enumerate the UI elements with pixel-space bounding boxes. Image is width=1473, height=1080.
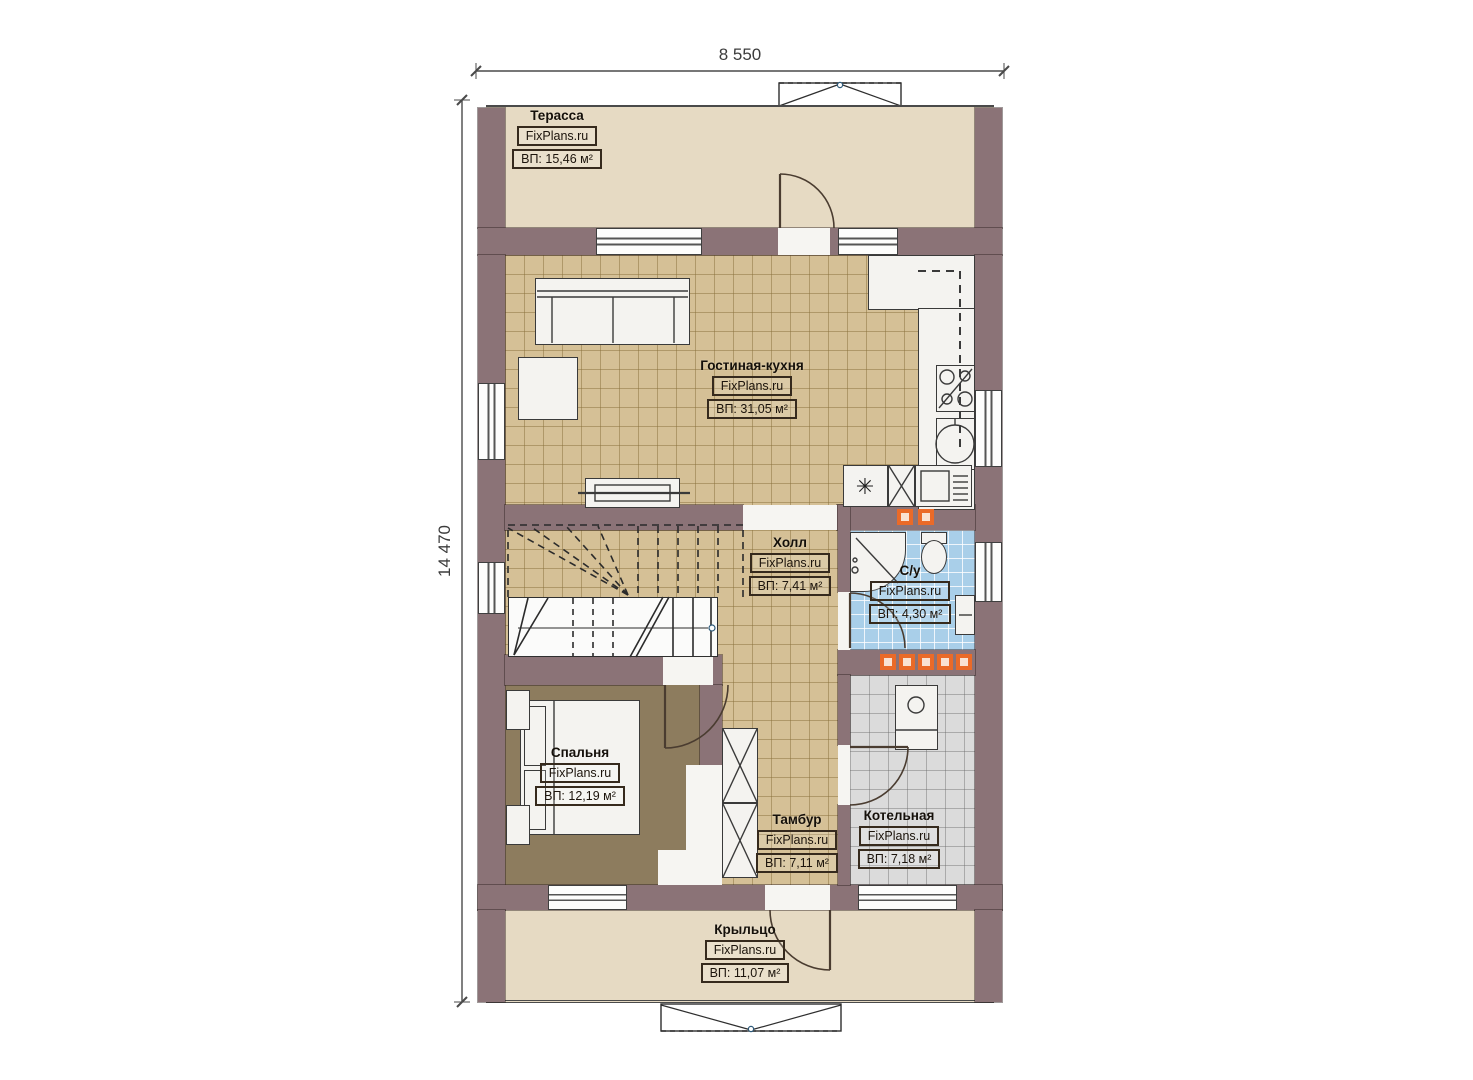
entry-steps-bottom-icon — [660, 1003, 842, 1033]
area-box: ВП: 7,18 м² — [858, 849, 941, 869]
dimension-top: 8 550 — [470, 42, 1010, 78]
bedroom-door-opening — [663, 655, 713, 685]
dishwasher — [915, 465, 972, 507]
heater-icon — [880, 654, 896, 670]
tv-stand — [585, 478, 680, 508]
nightstand — [506, 805, 530, 845]
area-box: ВП: 31,05 м² — [707, 399, 797, 419]
terrace-door-opening — [778, 228, 830, 255]
area-box: ВП: 15,46 м² — [512, 149, 602, 169]
heater-icon — [937, 654, 953, 670]
floor-plan-canvas: 8 550 14 470 — [0, 0, 1473, 1080]
watermark-box: FixPlans.ru — [757, 830, 838, 850]
room-name: Терасса — [530, 108, 584, 123]
dimension-left-label: 14 470 — [435, 525, 454, 577]
porch-left-post — [478, 910, 505, 1002]
kitchen-cabinet-x — [888, 465, 915, 507]
porch-label: Крыльцо FixPlans.ru ВП: 11,07 м² — [675, 922, 815, 983]
sofa — [535, 278, 690, 345]
watermark-box: FixPlans.ru — [859, 826, 940, 846]
area-box: ВП: 4,30 м² — [869, 604, 952, 624]
boiler-left-wall-upper — [838, 675, 850, 745]
bedroom-label: Спальня FixPlans.ru ВП: 12,19 м² — [510, 745, 650, 806]
area-box: ВП: 7,41 м² — [749, 576, 832, 596]
heater-icon — [918, 509, 934, 525]
bedroom-bottom-window — [548, 885, 627, 910]
boiler-door-opening — [838, 745, 850, 805]
heater-icon — [956, 654, 972, 670]
entry-door-opening — [765, 885, 830, 910]
watermark-box: FixPlans.ru — [540, 763, 621, 783]
area-box: ВП: 7,11 м² — [756, 853, 838, 873]
bedroom-top-wall-right — [713, 655, 722, 685]
room-name: Холл — [773, 535, 807, 550]
side-table — [518, 357, 578, 420]
living-kitchen-label: Гостиная-кухня FixPlans.ru ВП: 31,05 м² — [682, 358, 822, 419]
watermark-box: FixPlans.ru — [705, 940, 786, 960]
bedroom-right-wall — [700, 685, 722, 765]
boiler-unit — [895, 685, 938, 750]
kitchen-sink — [936, 418, 975, 470]
living-left-window — [478, 383, 505, 460]
watermark-box: FixPlans.ru — [750, 553, 831, 573]
house-outline: ✳ — [478, 100, 1002, 1002]
heater-icon — [918, 654, 934, 670]
dimension-top-label: 8 550 — [719, 45, 762, 64]
stairs-lower-flight — [508, 597, 718, 657]
living-top-window — [596, 228, 702, 255]
room-name: С/у — [899, 563, 920, 578]
nightstand — [506, 690, 530, 730]
bedroom-top-wall-left — [505, 655, 663, 685]
porch-right-post — [975, 910, 1002, 1002]
watermark-box: FixPlans.ru — [517, 126, 598, 146]
dimension-left: 14 470 — [436, 95, 472, 1010]
terrace-label: Терасса FixPlans.ru ВП: 15,46 м² — [487, 108, 627, 169]
stairs-left-window — [478, 562, 505, 614]
fridge — [843, 465, 888, 507]
heater-icon — [897, 509, 913, 525]
heater-icon — [899, 654, 915, 670]
kitchen-right-window — [975, 390, 1002, 467]
watermark-box: FixPlans.ru — [712, 376, 793, 396]
boiler-bottom-window — [858, 885, 957, 910]
wardrobe — [722, 728, 758, 803]
kitchen-counter-top — [868, 255, 975, 310]
room-name: Спальня — [551, 745, 609, 760]
bedroom-closet — [686, 765, 722, 885]
terrace-right-post — [975, 108, 1002, 228]
room-name: Гостиная-кухня — [700, 358, 803, 373]
kitchen-top-window — [838, 228, 898, 255]
hall-label: Холл FixPlans.ru ВП: 7,41 м² — [720, 535, 860, 596]
living-hall-passage — [743, 505, 837, 530]
kitchen-stove — [936, 365, 975, 412]
room-name: Крыльцо — [714, 922, 775, 937]
bathroom-label: С/у FixPlans.ru ВП: 4,30 м² — [840, 563, 980, 624]
bedroom-closet-foot — [658, 850, 686, 885]
room-name: Тамбур — [773, 812, 822, 827]
room-name: Котельная — [864, 808, 935, 823]
area-box: ВП: 12,19 м² — [535, 786, 625, 806]
area-box: ВП: 11,07 м² — [701, 963, 790, 983]
living-hall-wall-left — [505, 505, 743, 530]
watermark-box: FixPlans.ru — [870, 581, 951, 601]
boiler-label: Котельная FixPlans.ru ВП: 7,18 м² — [829, 808, 969, 869]
top-wall — [478, 228, 1002, 255]
